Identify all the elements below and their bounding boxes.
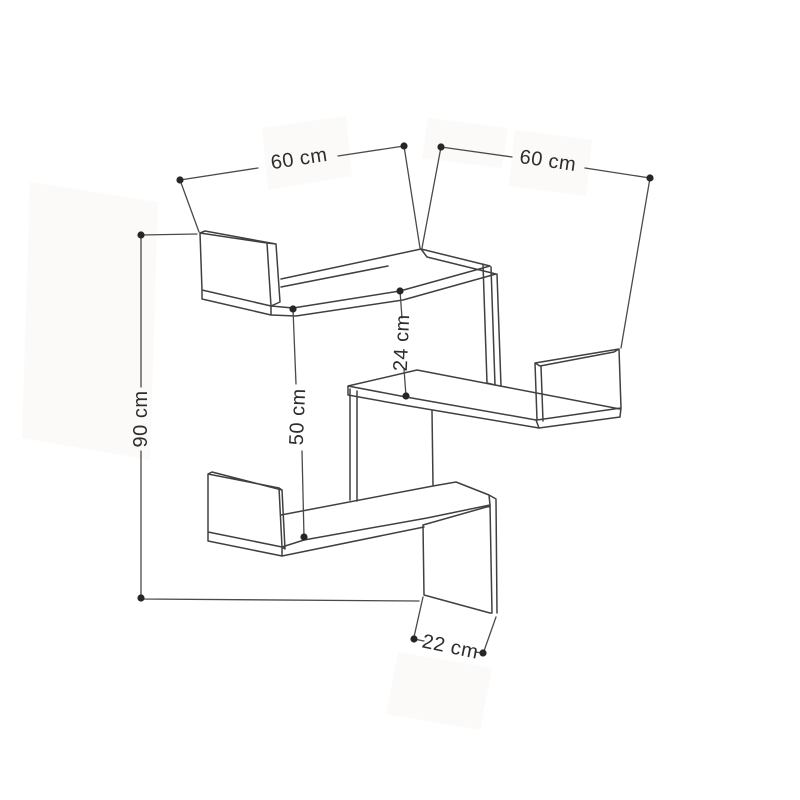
label-patch [386,652,492,730]
dimension-shelf-depth: 22 cm [410,597,496,664]
top-shelf-end-panel [200,231,280,315]
bottom-shelf-board [281,482,496,556]
dimension-large-gap-height: 50 cm [286,305,310,540]
dimension-endpoint-dot [479,649,486,656]
bottom-shelf-end-panel [208,472,285,556]
dimension-endpoint-dot [402,392,409,399]
shelf-unit-drawing [200,231,621,613]
shelf-dimension-diagram: 60 cm 60 cm 90 cm 50 cm [0,0,800,800]
dimension-label: 90 cm [130,391,152,448]
dimension-endpoint-dot [400,142,407,149]
dimension-endpoint-dot [300,533,307,540]
dimension-endpoint-dot [410,635,417,642]
dimension-endpoint-dot [396,287,403,294]
dimension-endpoint-dot [137,594,144,601]
middle-shelf-board [348,370,620,428]
dimension-label: 24 cm [390,314,414,372]
lower-vertical-divider [432,411,433,485]
dimension-endpoint-dot [437,143,444,150]
upper-vertical-divider [483,264,501,386]
label-patch [422,118,508,168]
top-shelf-board [271,249,496,316]
dimension-small-gap-height: 24 cm [390,287,414,399]
dimension-label: 50 cm [286,388,310,446]
dimension-endpoint-dot [176,176,183,183]
dimension-endpoint-dot [289,305,296,312]
middle-shelf-end-panel [535,349,621,428]
diagram-canvas: 60 cm 60 cm 90 cm 50 cm [0,0,800,800]
dimension-endpoint-dot [137,231,144,238]
dimension-endpoint-dot [646,174,653,181]
middle-shelf-support [350,389,357,501]
